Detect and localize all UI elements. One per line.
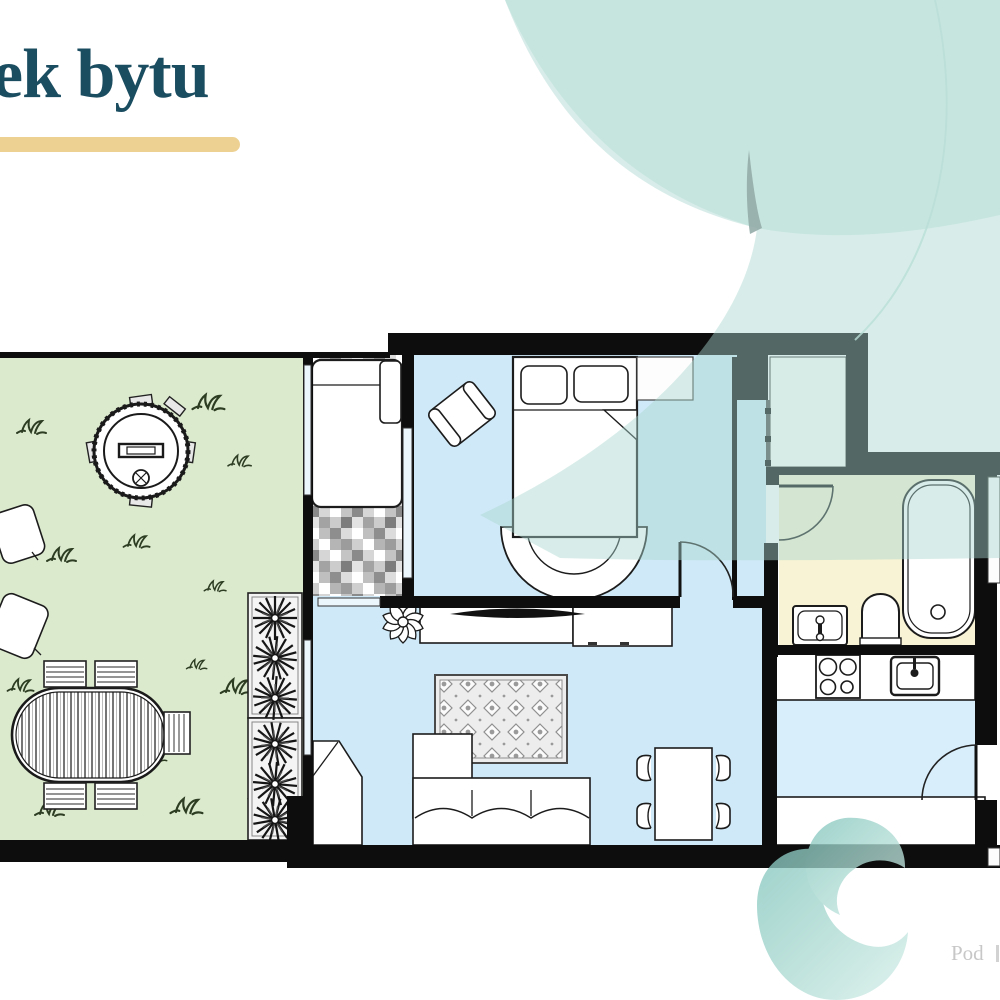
dining-table xyxy=(655,748,712,840)
stove xyxy=(816,655,860,698)
toilet xyxy=(860,594,901,645)
tv-sideboard xyxy=(420,606,672,646)
bathroom-sink xyxy=(793,606,847,645)
bathtub xyxy=(903,480,975,638)
corridor-floor xyxy=(737,400,766,597)
garden-dining-table xyxy=(12,688,168,782)
bedroom-glass-door xyxy=(403,428,412,578)
entry-counter xyxy=(773,797,985,845)
kitchen-sink xyxy=(891,657,939,695)
walk-in-closet-floor xyxy=(770,357,846,467)
exterior-window xyxy=(988,477,1000,583)
apartment-floorplan xyxy=(0,0,1000,1000)
kitchen-counter xyxy=(768,652,975,700)
daybed xyxy=(312,360,402,507)
sunroom-sliding-door xyxy=(318,598,380,606)
double-bed xyxy=(513,357,637,537)
bedroom-wardrobe-niche xyxy=(637,357,693,400)
